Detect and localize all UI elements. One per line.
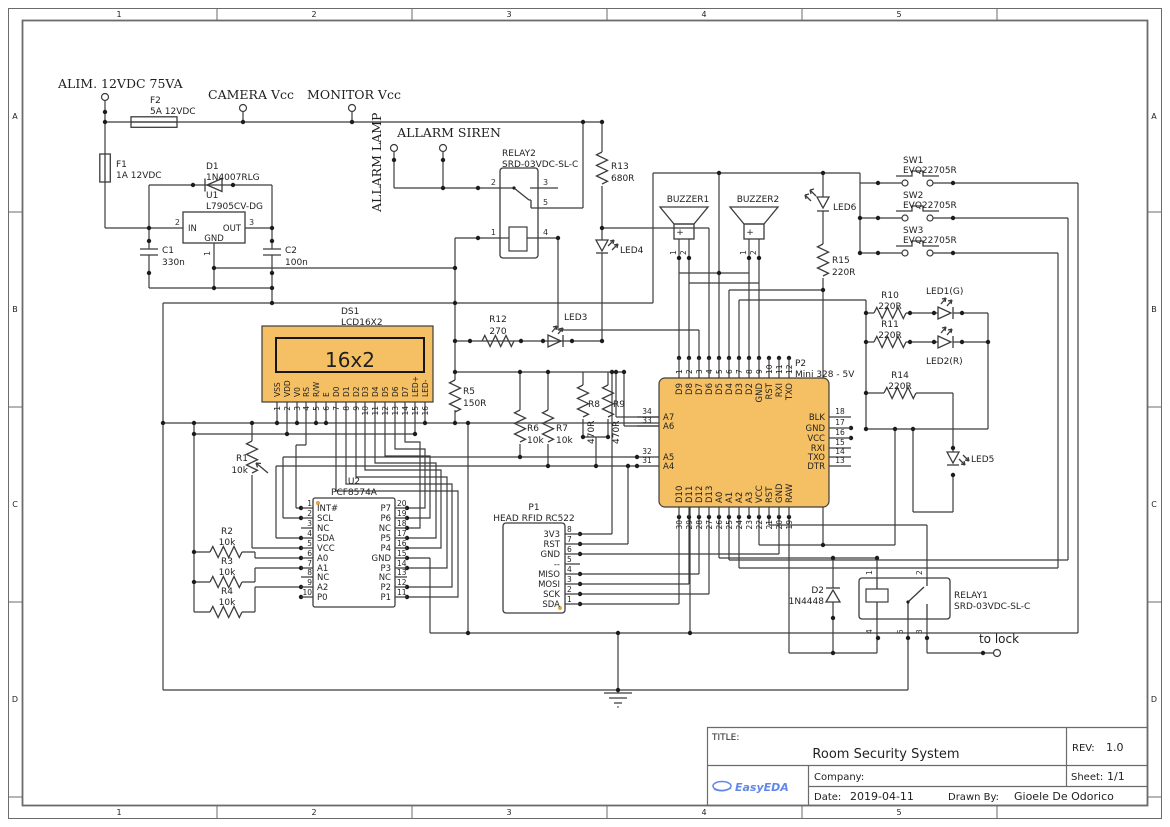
ds1-pin: R/W [312,381,321,397]
p1-pin: RST [544,540,561,550]
led2-ref: LED2(R) [926,357,963,367]
port-alim[interactable]: ALIM. 12VDC 75VA [57,76,184,101]
frame-col: 3 [506,10,511,19]
r2-ref: R2 [221,527,233,537]
component-relay2[interactable]: RELAY2 SRD-03VDC-SL-C 2 3 5 1 4 [491,149,578,258]
p2-pin-num: 29 [685,520,694,530]
component-f1-fuse[interactable]: F1 1A 12VDC [100,154,162,182]
led3-ref: LED3 [564,313,587,323]
component-r10-resistor[interactable]: R10 220R [874,291,906,319]
relay1-pin2: 2 [915,570,924,575]
sw3-value: EVQ22705R [903,236,957,246]
p2-pin: DTR [807,462,825,472]
sw1-value: EVQ22705R [903,166,957,176]
frame-row: B [1151,305,1157,314]
p2-pin-num: 22 [755,520,764,530]
wires [105,101,1078,694]
buzzer1-pin2: 2 [679,250,688,255]
component-r14-resistor[interactable]: R14 220R [884,371,916,399]
u2-pin: P0 [317,593,328,603]
u2-pin: NC [379,573,391,583]
component-r6-resistor[interactable]: R6 10k [515,410,545,446]
component-r11-resistor[interactable]: R11 220R [874,320,906,348]
frame-col: 1 [116,808,121,817]
p2-pin-num: 11 [775,364,784,374]
p2-pin-num: 14 [835,447,845,456]
u2-pin-num: 2 [307,509,312,518]
buzzer2-plus: + [746,228,754,238]
rev-label: REV: [1072,743,1095,754]
ds1-pin-num: 4 [302,406,311,411]
component-sw2[interactable]: SW2 EVQ22705R [896,191,957,221]
u2-pin-num: 4 [307,529,312,538]
p2-pin: RAW [785,483,795,503]
r11-ref: R11 [881,320,899,330]
p2-pin: D13 [705,486,715,503]
component-r2-resistor[interactable]: R2 10k [210,527,242,558]
r5-value: 150R [463,399,486,409]
p1-pin: SCK [543,590,560,600]
relay2-pin2: 2 [491,178,496,187]
r15-value: 220R [832,268,855,278]
port-monitor-label: MONITOR Vcc [307,87,401,102]
component-r7-resistor[interactable]: R7 10k [543,410,574,446]
frame-col: 2 [311,808,316,817]
p2-pin-num: 6 [725,369,734,374]
p2-pin: GND [775,483,785,503]
relay1-pin5: 5 [896,629,905,634]
relay1-pin3: 3 [915,629,924,634]
component-c2-capacitor[interactable]: C2 100n [263,246,308,268]
company-label: Company: [814,772,864,783]
r12-value: 270 [489,327,506,337]
port-camera-label: CAMERA Vcc [208,87,294,102]
r12-ref: R12 [489,315,507,325]
u2-pin: A2 [317,583,328,593]
port-allarm-siren[interactable]: ALLARM SIREN [396,125,501,152]
p2-pin: RXI [775,383,785,397]
p1-pin: MOSI [538,580,560,590]
component-led2[interactable]: LED2(R) [926,327,963,367]
p1-pin: GND [541,550,561,560]
sw3-ref: SW3 [903,226,923,236]
p2-pin-num: 1 [675,369,684,374]
p2-pin: TXO [785,383,795,401]
p2-value: Mini 328 - 5V [795,370,855,380]
component-r15-resistor[interactable]: R15 220R [818,244,856,278]
p2-pin: A6 [663,422,674,432]
component-buzzer2[interactable]: + BUZZER2 1 2 [730,195,779,255]
u2-pin: GND [372,554,392,564]
ds1-pin: D4 [371,386,380,397]
u2-pin: P1 [380,593,391,603]
d2-value: 1N4448 [789,597,825,607]
p2-pin-num: 31 [642,456,652,465]
relay2-pin5: 5 [543,198,548,207]
f2-value: 5A 12VDC [150,107,196,117]
r13-value: 680R [611,174,634,184]
sheet-label: Sheet: [1071,772,1103,783]
p2-pin: A3 [745,492,755,503]
sheet-value: 1/1 [1107,770,1125,783]
component-r8-resistor[interactable]: R8 470R [578,385,601,444]
port-lock-label: to lock [979,632,1019,646]
u2-ref: U2 [348,477,360,487]
r7-ref: R7 [556,424,568,434]
r2-value: 10k [219,538,236,548]
frame-col: 1 [116,10,121,19]
r6-value: 10k [527,436,544,446]
p2-pin: A4 [663,462,674,472]
p2-pin-num: 4 [705,369,714,374]
sw2-value: EVQ22705R [903,201,957,211]
u2-pin: P4 [380,544,391,554]
p2-pin-num: 23 [745,520,754,530]
p2-pin: D2 [745,383,755,395]
component-c1-capacitor[interactable]: C1 330n [140,246,185,268]
p2-pin-num: 7 [735,369,744,374]
d1-value: 1N4007RLG [206,173,260,183]
frame-col: 2 [311,10,316,19]
ds1-pin: V0 [293,387,302,397]
p1-pin-num: 1 [567,595,572,604]
component-r9-resistor[interactable]: R9 470R [603,385,626,444]
component-f2-fuse[interactable]: F2 5A 12VDC [131,96,196,127]
p2-pin: D10 [675,486,685,503]
u2-pin-num: 3 [307,519,312,528]
ds1-pin: LED+ [411,376,420,397]
component-relay1[interactable]: RELAY1 SRD-03VDC-SL-C 1 2 4 5 3 [859,570,1030,634]
p2-pin: RST [765,486,775,503]
ds1-pin-num: 9 [352,406,361,411]
u1-value: L7905CV-DG [206,202,263,212]
easyeda-logo-text: EasyEDA [735,781,789,794]
relay1-pin1: 1 [865,570,874,575]
ds1-pin: LED- [421,379,430,397]
ds1-pin: D3 [361,386,370,397]
led6-ref: LED6 [833,203,857,213]
f1-ref: F1 [116,160,127,170]
p2-pin-num: 21 [765,520,774,530]
ds1-pin-num: 8 [342,406,351,411]
port-monitor-vcc[interactable]: MONITOR Vcc [307,87,401,112]
ground-symbol [604,693,632,707]
p2-pin-num: 19 [785,520,794,530]
ds1-pin-num: 12 [381,406,390,416]
p2-pin-num: 30 [675,520,684,530]
p2-pin-num: 28 [695,520,704,530]
frame-row: B [12,305,18,314]
led5-ref: LED5 [971,455,994,465]
u2-pin-num: 10 [302,588,312,597]
frame-col: 4 [701,808,706,817]
ds1-pin-num: 13 [391,406,400,416]
frame-col: 4 [701,10,706,19]
u2-value: PCF8574A [331,488,378,498]
p2-pin-num: 5 [715,369,724,374]
p1-pin-num: 6 [567,545,572,554]
u2-pin-num: 7 [307,559,312,568]
ds1-pin: VDD [283,380,292,397]
frame-col: 3 [506,808,511,817]
ds1-pin-num: 1 [273,406,282,411]
frame-row: D [12,695,18,704]
u2-pin-num: 16 [397,539,407,548]
c2-value: 100n [285,258,308,268]
relay2-value: SRD-03VDC-SL-C [502,160,578,170]
p2-pin-num: 18 [835,407,845,416]
p2-pin-num: 17 [835,418,845,427]
u2-pin-num: 20 [397,499,407,508]
ds1-pin-num: 2 [283,406,292,411]
u1-pin-out: OUT [223,224,242,234]
component-ds1-lcd[interactable]: 16x2 DS1 LCD16X2 VSS VDD V0 RS R/W E D0 … [262,307,433,416]
p1-pin: 3V3 [543,530,560,540]
p2-pin: D12 [695,486,705,503]
u2-pin-num: 11 [397,588,407,597]
date-value: 2019-04-11 [850,790,914,803]
relay2-ref: RELAY2 [502,149,536,159]
r8-value: 470R [587,421,597,444]
component-led1[interactable]: LED1(G) [926,287,963,319]
r4-value: 10k [219,598,236,608]
u1-ref: U1 [206,191,218,201]
p1-pin-num: 7 [567,535,572,544]
p2-pin-num: 2 [685,369,694,374]
p2-pin-num: 8 [745,369,754,374]
p1-pin-num: 2 [567,585,572,594]
u2-pin-num: 17 [397,529,407,538]
rev-value: 1.0 [1106,741,1124,754]
p2-pin-num: 13 [835,456,845,465]
ds1-pin: D1 [342,386,351,397]
sw1-ref: SW1 [903,156,923,166]
p2-pin-num: 25 [725,520,734,530]
relay1-pin4: 4 [865,629,874,634]
r4-ref: R4 [221,587,233,597]
u2-pin: SDA [317,534,335,544]
r9-value: 470R [612,421,622,444]
r6-ref: R6 [527,424,539,434]
r10-value: 220R [878,302,901,312]
port-lamp-label: ALLARM LAMP [369,113,384,213]
p2-pin: D11 [685,486,695,503]
f1-value: 1A 12VDC [116,171,162,181]
p2-pin: BLK [809,413,826,423]
frame-row: C [1151,500,1157,509]
p2-pin-num: 24 [735,520,744,530]
buzzer1-pin1: 1 [669,250,678,255]
ds1-pin-num: 14 [401,406,410,416]
u2-pin: NC [379,524,391,534]
component-r3-resistor[interactable]: R3 10k [210,557,242,588]
u1-pin-gnd: GND [204,234,224,244]
u1-num-1: 1 [203,251,212,256]
ds1-pin-num: 16 [421,406,430,416]
p2-pin-num: 3 [695,369,704,374]
component-p1-rfid[interactable]: P1 HEAD RFID RC522 3V3 RST GND -- MISO M… [493,503,580,613]
component-buzzer1[interactable]: + BUZZER1 1 2 [660,195,709,255]
component-r5-resistor[interactable]: R5 150R [450,380,487,412]
ds1-pin-num: 7 [332,406,341,411]
u2-pin-num: 12 [397,578,407,587]
buzzer2-pin2: 2 [749,250,758,255]
drawn-by-label: Drawn By: [948,792,999,803]
relay1-value: SRD-03VDC-SL-C [954,602,1030,612]
r13-ref: R13 [611,162,629,172]
p2-pin: D8 [685,383,695,395]
p1-pin: MISO [538,570,560,580]
easyeda-logo: EasyEDA [713,781,789,794]
u2-pin-num: 8 [307,568,312,577]
port-allarm-lamp[interactable]: ALLARM LAMP [369,113,398,213]
p2-pin-num: 15 [835,438,845,447]
p2-pin: GND [755,383,765,403]
component-r1-trimmer[interactable]: R1 10k [231,441,268,476]
buzzer1-ref: BUZZER1 [667,195,710,205]
ds1-ref: DS1 [341,307,359,317]
component-d2-diode[interactable]: D2 1N4448 [789,586,840,607]
port-siren-label: ALLARM SIREN [396,125,501,140]
ds1-pin: D5 [381,386,390,397]
port-camera-vcc[interactable]: CAMERA Vcc [208,87,294,112]
u2-pin: P2 [380,583,391,593]
sheet-title: Room Security System [812,747,959,762]
u2-pin-num: 19 [397,509,407,518]
r10-ref: R10 [881,291,899,301]
u2-pin: NC [317,573,329,583]
r1-value: 10k [231,466,248,476]
led4-ref: LED4 [620,246,644,256]
r14-ref: R14 [891,371,909,381]
ds1-pin: VSS [273,382,282,397]
component-u2-pcf8574a[interactable]: U2 PCF8574A INT# SCL NC SDA VCC A0 A1 NC… [301,477,407,607]
r5-ref: R5 [463,387,475,397]
p1-pin-num: 3 [567,575,572,584]
drawn-by-value: Gioele De Odorico [1014,790,1114,803]
r1-ref: R1 [236,454,248,464]
p2-pin: GND [806,424,826,434]
ds1-pin-num: 6 [322,406,331,411]
c2-ref: C2 [285,246,297,256]
ds1-value: LCD16X2 [341,318,383,328]
r3-value: 10k [219,568,236,578]
title-label: TITLE: [711,733,739,743]
r8-ref: R8 [588,400,600,410]
u2-pin-num: 9 [307,578,312,587]
schematic-sheet: 1 2 3 4 5 1 2 3 4 5 A B C D A B C D [0,0,1170,827]
p2-pin: A1 [725,492,735,503]
u2-pin-num: 1 [307,499,312,508]
u2-pin: NC [317,524,329,534]
component-sw1[interactable]: SW1 EVQ22705R [896,156,957,186]
frame-col: 5 [896,10,901,19]
u2-pin: VCC [317,544,335,554]
p2-pin: VCC [755,485,765,503]
ds1-pin: E [322,392,331,397]
component-r13-resistor[interactable]: R13 680R [597,152,635,184]
component-led5[interactable]: LED5 [947,452,994,465]
p2-pin: RST [765,382,775,399]
component-led6[interactable]: LED6 [805,189,857,213]
ds1-pin: D6 [391,386,400,397]
r9-ref: R9 [613,400,625,410]
u2-pin-num: 6 [307,549,312,558]
frame-row: D [1151,695,1157,704]
c1-ref: C1 [162,246,174,256]
u2-pin: P7 [380,504,391,514]
p2-pin-num: 33 [642,416,652,425]
p2-pin: D5 [715,383,725,395]
p2-pin: VCC [807,434,825,444]
frame-row: C [12,500,18,509]
port-alim-label: ALIM. 12VDC 75VA [57,76,184,91]
buzzer2-ref: BUZZER2 [737,195,780,205]
component-u1-regulator[interactable]: U1 L7905CV-DG IN OUT GND 2 3 1 [175,191,263,256]
u2-pin-num: 15 [397,549,407,558]
p1-pin-num: 4 [567,565,572,574]
p1-pin-num: 8 [567,525,572,534]
ds1-pin: D7 [401,386,410,397]
p2-pin-num: 27 [705,520,714,530]
p1-pin-num: 5 [567,555,572,564]
relay2-pin3: 3 [543,178,548,187]
u2-pin-num: 5 [307,539,312,548]
ds1-pin-num: 15 [411,406,420,416]
frame-row: A [1151,112,1157,121]
u2-pin: A0 [317,554,328,564]
ds1-screen-text: 16x2 [325,348,375,372]
ds1-pin: RS [302,387,311,397]
p2-pin-num: 10 [765,364,774,374]
p2-pin-num: 26 [715,520,724,530]
u1-num-3: 3 [249,218,254,227]
component-sw3[interactable]: SW3 EVQ22705R [896,226,957,256]
f2-ref: F2 [150,96,161,106]
p1-pin: -- [554,560,560,570]
relay2-pin4: 4 [543,228,548,237]
relay1-ref: RELAY1 [954,591,988,601]
component-p2-mini328[interactable]: P2 Mini 328 - 5V D9 D8 D7 D6 D5 D4 D3 D2… [637,358,855,530]
ds1-pin-num: 10 [361,406,370,416]
d2-ref: D2 [811,586,824,596]
led1-ref: LED1(G) [926,287,963,297]
component-led4[interactable]: LED4 [596,240,644,256]
p2-pin-num: 34 [642,407,652,416]
u2-pin: INT# [317,504,338,514]
ds1-pin: D2 [352,386,361,397]
p1-value: HEAD RFID RC522 [493,514,575,524]
r7-value: 10k [556,436,573,446]
component-r4-resistor[interactable]: R4 10k [210,587,242,618]
p2-pin: D9 [675,383,685,395]
d1-ref: D1 [206,162,219,172]
frame-row: A [12,112,18,121]
component-r12-resistor[interactable]: R12 270 [482,315,514,347]
r11-value: 220R [878,331,901,341]
p2-pin-num: 9 [755,369,764,374]
u2-pin: P5 [380,534,391,544]
p2-pin: A0 [715,492,725,503]
date-label: Date: [814,792,841,803]
buzzer2-pin1: 1 [739,250,748,255]
ds1-pin-num: 11 [371,406,380,416]
p2-pin: A2 [735,492,745,503]
p2-pin: D6 [705,383,715,395]
u2-pin-num: 18 [397,519,407,528]
c1-value: 330n [162,258,185,268]
p2-pin: D3 [735,383,745,395]
